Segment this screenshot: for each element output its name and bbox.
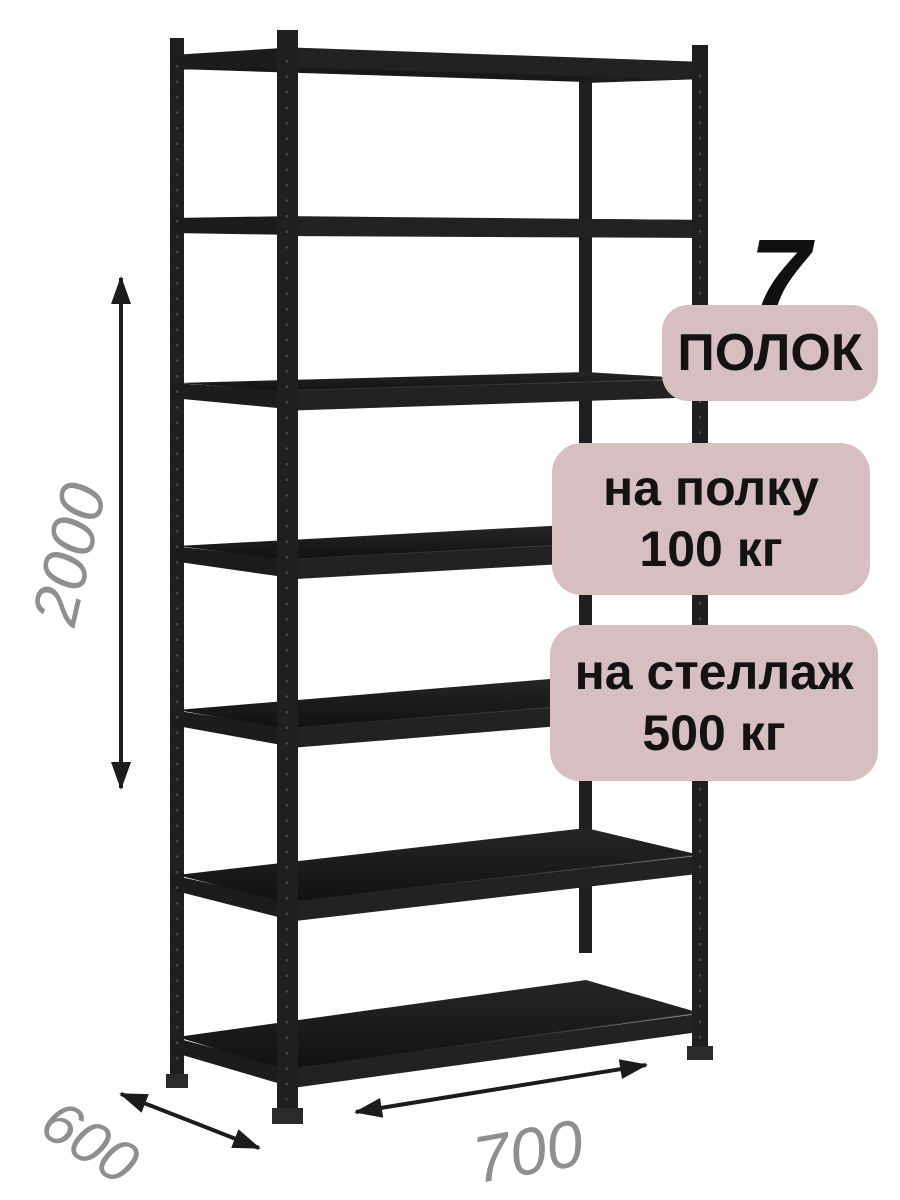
post-back-left-foot (166, 1074, 188, 1088)
shelf-load-line2: 100 кг (639, 519, 782, 580)
shelf-count-badge: ПОЛОК (662, 305, 878, 401)
post-front-right-foot (687, 1046, 713, 1060)
rack-load-line2: 500 кг (642, 703, 785, 764)
shelf-1 (172, 47, 706, 83)
post-front-left (277, 30, 298, 1110)
rack-load-badge: на стеллаж 500 кг (550, 625, 878, 781)
shelf-count-badge-label: ПОЛОК (677, 323, 862, 383)
shelf-7 (172, 980, 706, 1090)
shelf-6 (172, 828, 706, 923)
rack-illustration (0, 0, 900, 1200)
shelf-2 (172, 216, 706, 238)
shelf-3 (172, 372, 706, 411)
post-front-left-foot (272, 1108, 303, 1124)
product-image: 7 ПОЛОК на полку 100 кг на стеллаж 500 к… (0, 0, 900, 1200)
rack-load-line1: на стеллаж (575, 642, 854, 703)
shelf-2-front-beam (278, 216, 706, 238)
shelf-load-line1: на полку (603, 458, 819, 519)
shelf-load-badge: на полку 100 кг (552, 443, 870, 595)
